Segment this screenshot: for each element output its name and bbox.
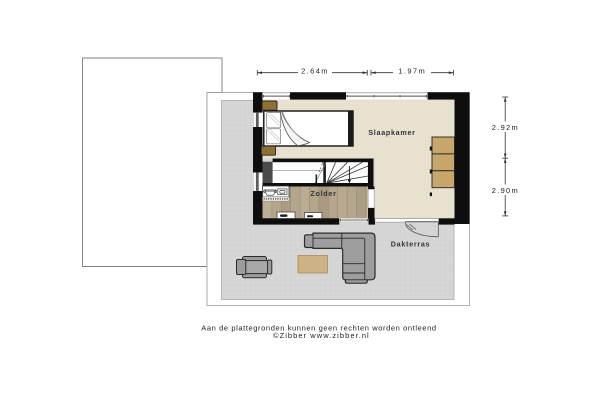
svg-text:2.92m: 2.92m: [492, 123, 519, 132]
svg-text:1.97m: 1.97m: [398, 67, 426, 76]
svg-text:2.90m: 2.90m: [492, 186, 519, 195]
svg-text:2.64m: 2.64m: [301, 67, 329, 76]
svg-text:Dakterras: Dakterras: [391, 240, 430, 249]
svg-text:Slaapkamer: Slaapkamer: [368, 128, 415, 137]
svg-text:Zolder: Zolder: [310, 189, 336, 198]
svg-text:©Zibber www.zibber.nl: ©Zibber www.zibber.nl: [273, 331, 370, 340]
